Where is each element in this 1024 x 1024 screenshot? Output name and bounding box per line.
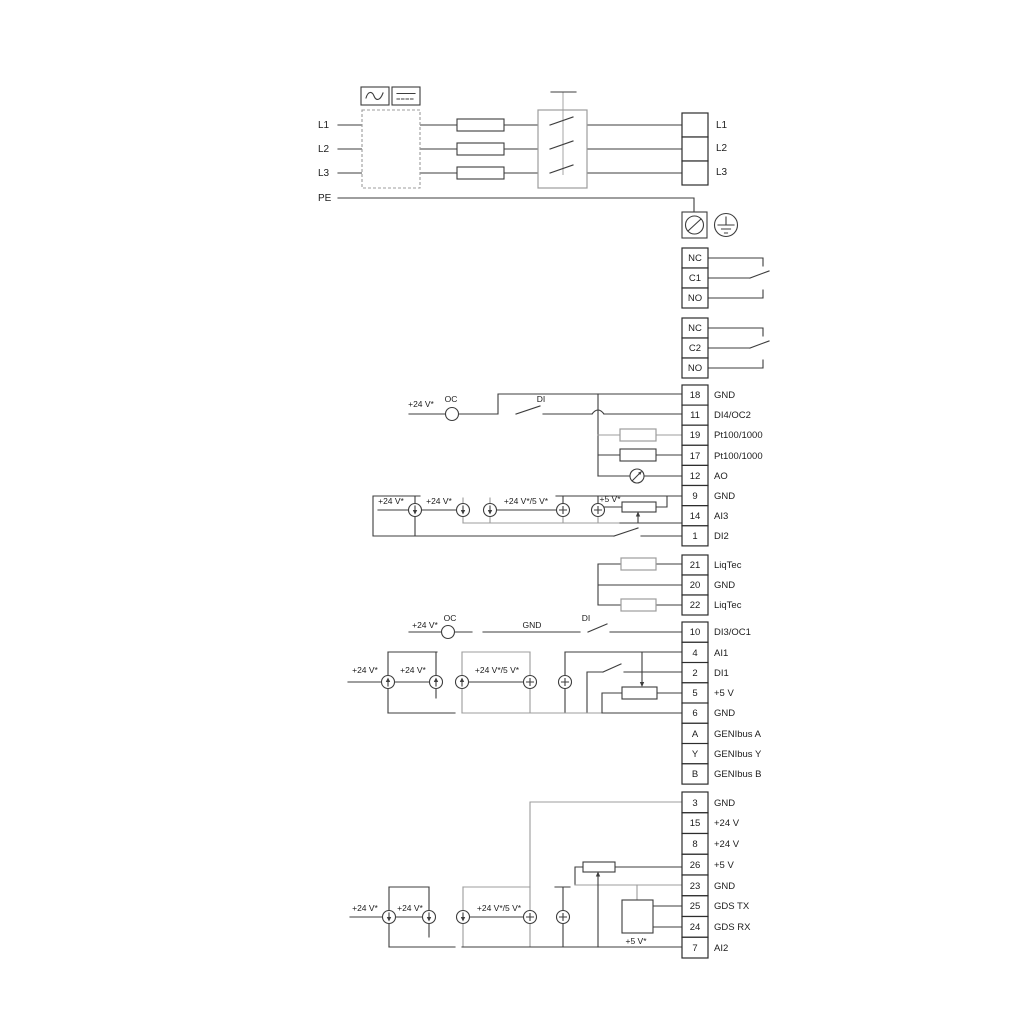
terminal-label: GENIbus B xyxy=(714,769,762,780)
relay-blade xyxy=(750,341,769,348)
terminal-label: DI3/OC1 xyxy=(714,627,751,638)
terminal-cell xyxy=(682,113,708,137)
wire-pe xyxy=(338,198,694,212)
current-source-icon xyxy=(382,676,395,689)
terminal-number: 17 xyxy=(690,451,701,462)
potentiometer-icon xyxy=(583,862,615,872)
terminal-cell xyxy=(682,161,708,185)
oc-annotation: OC xyxy=(445,394,458,404)
voltage-annotation: +5 V* xyxy=(625,936,647,946)
terminal-label: +5 V xyxy=(714,688,734,699)
fuse-icon xyxy=(457,119,504,131)
terminal-number: Y xyxy=(692,749,699,760)
terminal-number: A xyxy=(692,729,699,740)
terminal-label: LiqTec xyxy=(714,560,742,571)
terminal-label: L3 xyxy=(716,167,728,178)
voltage-source-icon xyxy=(557,504,570,517)
voltage-annotation: +24 V* xyxy=(408,399,434,409)
terminal-number: 20 xyxy=(690,580,701,591)
terminal-label: GND xyxy=(714,708,735,719)
wiring-diagram: L1 L2 L3 PE L1 L2 L3 NC C1 NO NC C2 NO xyxy=(0,0,1024,1024)
terminal-label: GND xyxy=(714,798,735,809)
terminal-number: 18 xyxy=(690,390,701,401)
current-source-icon xyxy=(457,911,470,924)
line-label: L1 xyxy=(318,120,330,131)
terminal-number: C2 xyxy=(689,343,701,354)
voltage-annotation: +24 V* xyxy=(397,903,423,913)
resistor-icon xyxy=(621,599,656,611)
terminal-label: +24 V xyxy=(714,839,740,850)
terminal-label: GND xyxy=(714,881,735,892)
terminal-label: DI4/OC2 xyxy=(714,410,751,421)
terminal-label: Pt100/1000 xyxy=(714,451,763,462)
gnd-annotation: GND xyxy=(523,620,542,630)
switch-blade-icon xyxy=(516,406,540,414)
current-source-icon xyxy=(484,504,497,517)
terminal-number: 15 xyxy=(690,818,701,829)
voltage-annotation: +24 V* xyxy=(378,496,404,506)
terminal-number: NO xyxy=(688,293,702,304)
emc-filter-box xyxy=(362,110,420,188)
fuse-icon xyxy=(457,167,504,179)
switch-blade-icon xyxy=(588,624,607,632)
stripD-wiring: +24 V* OC DI xyxy=(408,394,682,483)
terminal-label: GND xyxy=(714,390,735,401)
oc-annotation: OC xyxy=(444,613,457,623)
voltage-source-icon xyxy=(524,676,537,689)
wire xyxy=(653,906,682,927)
earth-ground-glyph xyxy=(718,217,734,233)
relay1-block: NC C1 NO xyxy=(682,248,769,308)
relay-blade xyxy=(750,271,769,278)
terminal-number: NC xyxy=(688,323,702,334)
open-collector-icon xyxy=(446,408,459,421)
dc-symbol-icon xyxy=(392,87,420,105)
ai2-section: +24 V* +24 V* +24 V*/5 V* +5 V* xyxy=(350,802,682,947)
terminal-number: 22 xyxy=(690,600,701,611)
terminal-number: 10 xyxy=(690,627,701,638)
liqtec-block: 21 20 22 LiqTec GND LiqTec xyxy=(598,555,742,615)
terminal-number: 23 xyxy=(690,881,701,892)
voltage-annotation: +24 V*/5 V* xyxy=(475,665,520,675)
stripG-block: 3 15 8 26 23 25 24 7 GND +24 V +24 V +5 … xyxy=(682,792,751,958)
terminal-label: L2 xyxy=(716,143,728,154)
stripD-block: 18 11 19 17 12 9 14 1 GND DI4/OC2 Pt100/… xyxy=(682,385,763,546)
terminal-number: 12 xyxy=(690,471,701,482)
terminal-label: GENIbus A xyxy=(714,729,762,740)
terminal-number: 9 xyxy=(692,491,697,502)
voltage-source-icon xyxy=(559,676,572,689)
voltage-annotation: +24 V*/5 V* xyxy=(504,496,549,506)
terminal-label: Pt100/1000 xyxy=(714,430,763,441)
terminal-number: 3 xyxy=(692,798,697,809)
terminal-cell xyxy=(682,137,708,161)
di-annotation: DI xyxy=(537,394,546,404)
terminal-label: AO xyxy=(714,471,728,482)
voltage-annotation: +5 V* xyxy=(599,494,621,504)
terminal-number: 21 xyxy=(690,560,701,571)
terminal-label: AI2 xyxy=(714,943,728,954)
terminal-label: AI3 xyxy=(714,511,728,522)
current-source-icon xyxy=(409,504,422,517)
switch-blade-icon xyxy=(603,664,621,672)
ai1-section: +24 V* OC GND DI xyxy=(348,613,682,713)
voltage-source-icon xyxy=(592,504,605,517)
terminal-number: 19 xyxy=(690,430,701,441)
switch-blade-icon xyxy=(614,528,638,536)
terminal-number: B xyxy=(692,769,698,780)
terminal-number: 6 xyxy=(692,708,697,719)
terminal-label: GND xyxy=(714,580,735,591)
relay2-block: NC C2 NO xyxy=(682,318,769,378)
resistor-icon xyxy=(621,558,656,570)
terminal-label: DI2 xyxy=(714,531,729,542)
resistor-icon xyxy=(620,449,656,461)
terminal-label: L1 xyxy=(716,120,728,131)
wire xyxy=(530,802,682,947)
potentiometer-icon xyxy=(622,687,657,699)
terminal-number: 8 xyxy=(692,839,697,850)
terminal-number: 4 xyxy=(692,648,697,659)
voltage-annotation: +24 V*/5 V* xyxy=(477,903,522,913)
disconnect-switch-box xyxy=(538,110,587,188)
stripF-block: 10 4 2 5 6 A Y B DI3/OC1 AI1 DI1 +5 V GN… xyxy=(682,622,762,784)
terminal-number: 14 xyxy=(690,511,701,522)
ai3-sensor-options: +24 V* +24 V* +24 V*/5 V* +5 V* xyxy=(373,494,682,536)
current-source-icon xyxy=(423,911,436,924)
terminal-label: +5 V xyxy=(714,860,734,871)
terminal-label: AI1 xyxy=(714,648,728,659)
current-source-icon xyxy=(456,676,469,689)
voltage-annotation: +24 V* xyxy=(352,903,378,913)
terminal-number: NO xyxy=(688,363,702,374)
relay-contact-icon xyxy=(708,258,763,298)
terminal-label: LiqTec xyxy=(714,600,742,611)
terminal-number: 25 xyxy=(690,901,701,912)
power-section: L1 L2 L3 PE L1 L2 L3 xyxy=(318,87,738,238)
voltage-annotation: +24 V* xyxy=(426,496,452,506)
line-label: PE xyxy=(318,193,332,204)
terminal-label: GENIbus Y xyxy=(714,749,762,760)
terminal-label: DI1 xyxy=(714,668,729,679)
open-collector-icon xyxy=(442,626,455,639)
terminal-number: 11 xyxy=(690,410,700,421)
potentiometer-icon xyxy=(622,502,656,512)
terminal-label: GDS TX xyxy=(714,901,750,912)
line-label: L3 xyxy=(318,168,330,179)
current-source-icon xyxy=(457,504,470,517)
voltage-source-icon xyxy=(524,911,537,924)
gds-sensor-box xyxy=(622,900,653,933)
line-label: L2 xyxy=(318,144,330,155)
voltage-annotation: +24 V* xyxy=(352,665,378,675)
terminal-label: +24 V xyxy=(714,818,740,829)
diagram-canvas: L1 L2 L3 PE L1 L2 L3 NC C1 NO NC C2 NO xyxy=(0,0,1024,1024)
resistor-icon xyxy=(620,429,656,441)
current-source-icon xyxy=(383,911,396,924)
terminal-number: 7 xyxy=(692,943,697,954)
terminal-number: 5 xyxy=(692,688,697,699)
wire xyxy=(463,517,620,524)
power-terminal-block xyxy=(682,113,708,185)
terminal-number: NC xyxy=(688,253,702,264)
terminal-number: C1 xyxy=(689,273,701,284)
voltage-annotation: +24 V* xyxy=(400,665,426,675)
relay-contact-icon xyxy=(708,328,763,368)
terminal-label: GDS RX xyxy=(714,922,751,933)
terminal-label: GND xyxy=(714,491,735,502)
voltage-annotation: +24 V* xyxy=(412,620,438,630)
terminal-number: 26 xyxy=(690,860,701,871)
fuse-icon xyxy=(457,143,504,155)
wire xyxy=(620,512,682,523)
wiper-arrowhead xyxy=(640,682,644,687)
ac-symbol-icon xyxy=(361,87,389,105)
voltage-source-icon xyxy=(557,911,570,924)
terminal-number: 24 xyxy=(690,922,701,933)
di-annotation: DI xyxy=(582,613,591,623)
terminal-number: 2 xyxy=(692,668,697,679)
terminal-number: 1 xyxy=(692,531,697,542)
current-source-icon xyxy=(430,676,443,689)
